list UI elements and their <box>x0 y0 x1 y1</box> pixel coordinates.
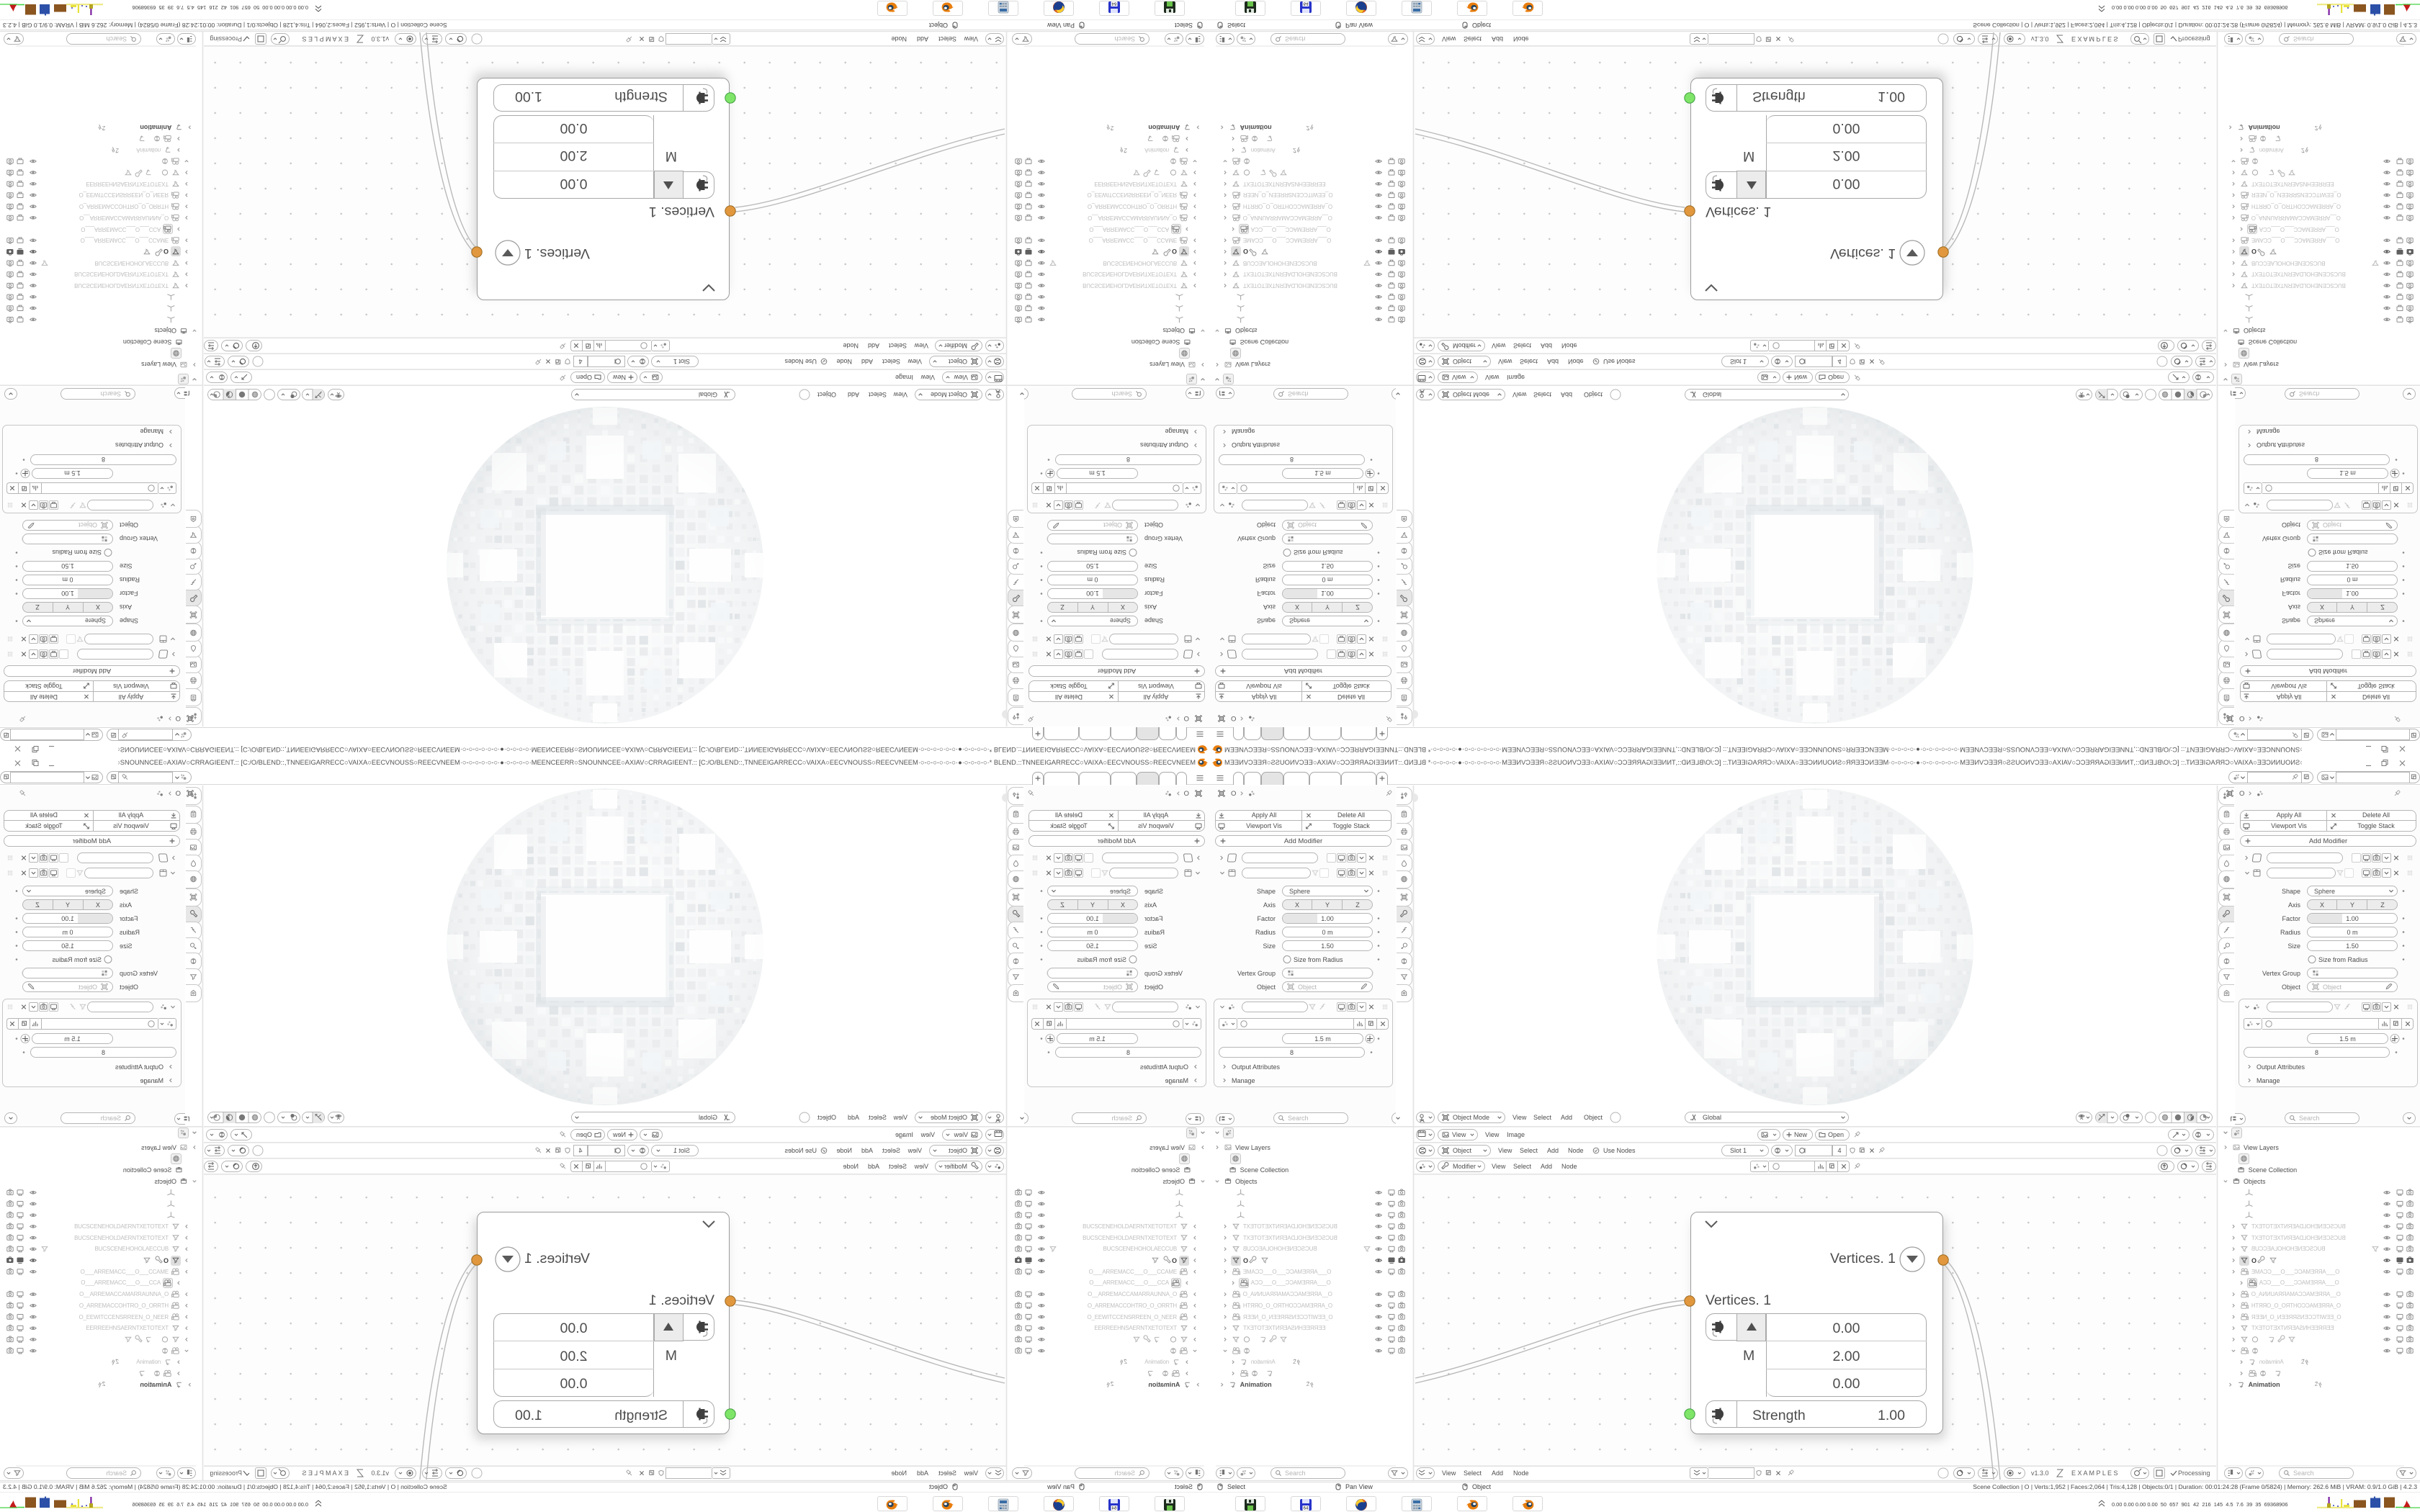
svg-text:64: 64 <box>1111 1507 1116 1511</box>
svg-text:64: 64 <box>1304 1507 1309 1511</box>
